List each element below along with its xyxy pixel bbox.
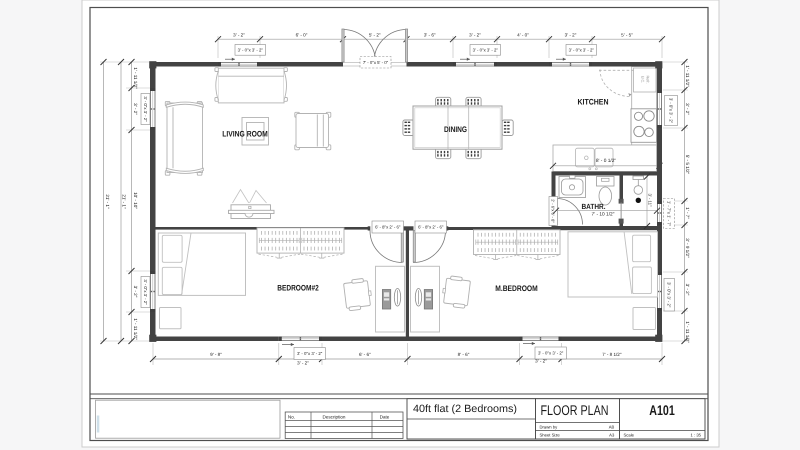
svg-text:3' - 0"x 3' - 2": 3' - 0"x 3' - 2" — [143, 96, 148, 122]
svg-text:3' - 2": 3' - 2" — [565, 32, 577, 37]
svg-text:A3: A3 — [609, 432, 615, 437]
svg-text:FLOOR PLAN: FLOOR PLAN — [541, 402, 609, 418]
svg-text:5' - 5": 5' - 5" — [621, 32, 633, 37]
svg-text:8' - 6": 8' - 6" — [458, 352, 470, 357]
svg-text:LIVING ROOM: LIVING ROOM — [222, 129, 268, 138]
svg-text:3' - 0"x 3' - 2": 3' - 0"x 3' - 2" — [143, 279, 148, 305]
svg-text:3' - 0"x 3' - 2": 3' - 0"x 3' - 2" — [297, 351, 323, 356]
svg-text:3' - 0"x 3' - 2": 3' - 0"x 3' - 2" — [473, 47, 499, 52]
svg-text:A101: A101 — [649, 402, 675, 418]
svg-text:6' - 0": 6' - 0" — [296, 32, 308, 37]
svg-text:Description: Description — [323, 415, 346, 420]
svg-text:DINING: DINING — [444, 125, 467, 134]
svg-text:BEDROOM#2: BEDROOM#2 — [277, 284, 319, 293]
svg-text:3' - 2": 3' - 2" — [133, 286, 138, 298]
svg-text:1' - 11 1/2": 1' - 11 1/2" — [685, 65, 690, 87]
svg-text:5' - 5 1/2": 5' - 5 1/2" — [685, 155, 690, 175]
svg-text:U.C.: U.C. — [641, 76, 645, 84]
svg-text:3' - 2": 3' - 2" — [685, 103, 690, 115]
svg-text:3' - 2": 3' - 2" — [233, 32, 245, 37]
svg-text:1' - 11 1/2": 1' - 11 1/2" — [133, 67, 138, 89]
svg-text:3' - 2": 3' - 2" — [297, 361, 309, 366]
svg-text:Refr.: Refr. — [646, 75, 650, 83]
svg-text:BATHR.: BATHR. — [582, 202, 606, 211]
svg-text:1' - 11 1/2": 1' - 11 1/2" — [133, 318, 138, 340]
svg-text:9' - 8": 9' - 8" — [210, 352, 222, 357]
svg-text:6' - 8"x 2' - 6": 6' - 8"x 2' - 6" — [375, 225, 401, 230]
svg-text:3' - 0"x 3' - 2": 3' - 0"x 3' - 2" — [667, 282, 672, 308]
svg-text:1 : 35: 1 : 35 — [691, 432, 702, 437]
svg-text:8' - 0 1/2": 8' - 0 1/2" — [596, 158, 617, 164]
svg-text:No.: No. — [288, 415, 295, 420]
svg-text:3' - 0"x 3' - 2": 3' - 0"x 3' - 2" — [538, 351, 564, 356]
svg-text:3' - 0"x 3' - 2": 3' - 0"x 3' - 2" — [569, 47, 595, 52]
svg-text:7' - 8 1/2": 7' - 8 1/2" — [602, 352, 622, 357]
svg-text:M.BEDROOM: M.BEDROOM — [495, 284, 538, 293]
svg-text:AB: AB — [609, 424, 615, 429]
svg-text:Sheet Size: Sheet Size — [540, 432, 561, 437]
svg-text:3' - 2": 3' - 2" — [133, 103, 138, 115]
svg-text:1' - 7": 1' - 7" — [685, 207, 690, 219]
svg-text:3' - 2": 3' - 2" — [535, 359, 547, 364]
svg-text:3' - 6": 3' - 6" — [424, 32, 436, 37]
svg-text:10' - 10": 10' - 10" — [133, 192, 138, 209]
svg-text:6' - 8"x 2' - 6": 6' - 8"x 2' - 6" — [418, 225, 444, 230]
svg-text:1' - 7"x 1' - 7": 1' - 7"x 1' - 7" — [666, 201, 671, 227]
svg-text:3' - 11": 3' - 11" — [647, 193, 652, 206]
svg-text:3' - 9 1/2": 3' - 9 1/2" — [685, 238, 690, 258]
svg-text:21' - 1": 21' - 1" — [121, 194, 126, 209]
svg-text:4' - 0": 4' - 0" — [517, 32, 529, 37]
svg-text:7' - 10 1/2": 7' - 10 1/2" — [592, 212, 615, 218]
svg-text:3' - 0"x 3' - 2": 3' - 0"x 3' - 2" — [668, 98, 673, 124]
svg-text:6' - 6": 6' - 6" — [359, 352, 371, 357]
svg-text:3' - 2": 3' - 2" — [685, 284, 690, 296]
svg-text:1' - 11 1/2": 1' - 11 1/2" — [685, 321, 690, 343]
svg-text:21' - 1": 21' - 1" — [105, 194, 110, 209]
svg-text:KITCHEN: KITCHEN — [578, 98, 609, 107]
svg-text:Date: Date — [380, 415, 390, 420]
svg-text:5' - 2": 5' - 2" — [369, 32, 381, 37]
svg-text:7' - 0"x 5' - 0": 7' - 0"x 5' - 0" — [363, 60, 389, 65]
svg-text:Drawn by: Drawn by — [540, 424, 559, 429]
svg-text:3' - 2": 3' - 2" — [469, 32, 481, 37]
svg-text:Scale: Scale — [624, 432, 635, 437]
svg-text:3' - 0"x 3' - 2": 3' - 0"x 3' - 2" — [238, 47, 264, 52]
svg-text:40ft flat (2 Bedrooms): 40ft flat (2 Bedrooms) — [413, 403, 517, 415]
